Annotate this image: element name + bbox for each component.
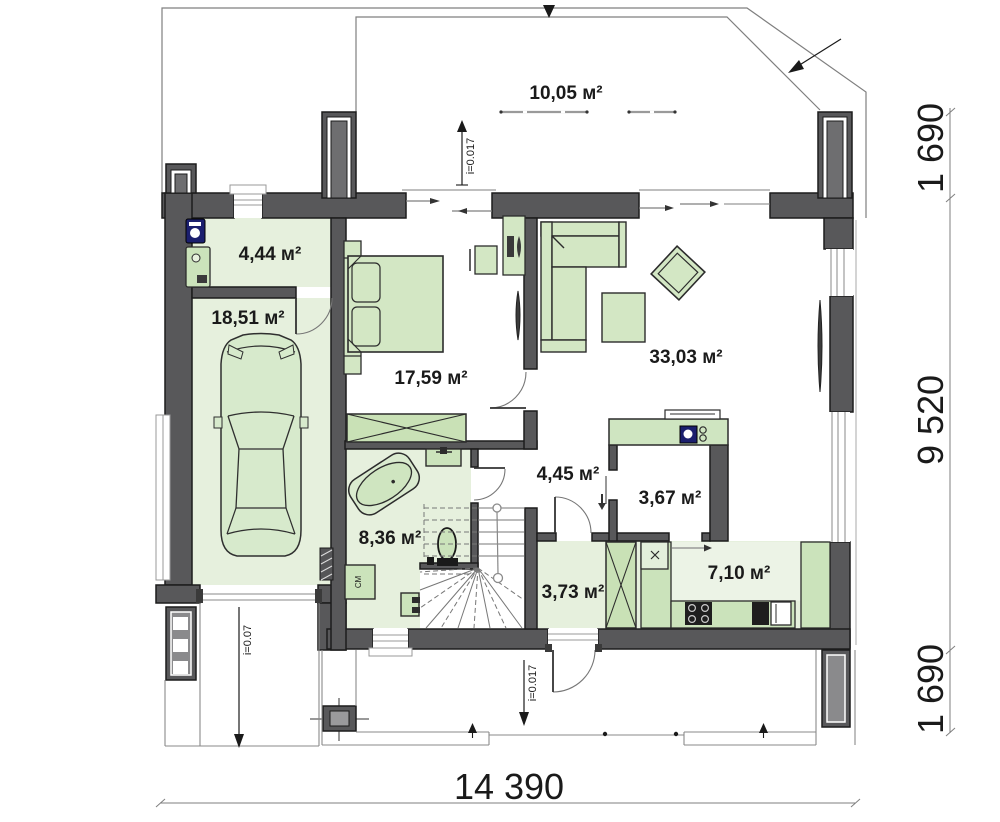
svg-text:1 690: 1 690 (910, 644, 951, 734)
svg-text:18,51 м²: 18,51 м² (211, 308, 284, 329)
svg-text:9 520: 9 520 (910, 375, 951, 465)
svg-text:4,44 м²: 4,44 м² (239, 244, 302, 265)
svg-text:3,67 м²: 3,67 м² (639, 488, 702, 509)
svg-text:i=0.017: i=0.017 (527, 665, 539, 701)
svg-text:33,03 м²: 33,03 м² (649, 347, 722, 368)
svg-text:3,73 м²: 3,73 м² (542, 582, 605, 603)
svg-text:4,45 м²: 4,45 м² (537, 464, 600, 485)
svg-text:17,59 м²: 17,59 м² (394, 368, 467, 389)
svg-text:7,10 м²: 7,10 м² (708, 563, 771, 584)
svg-text:i=0.07: i=0.07 (242, 625, 254, 655)
svg-text:i=0.017: i=0.017 (465, 138, 477, 174)
svg-text:10,05 м²: 10,05 м² (529, 83, 602, 104)
svg-text:14 390: 14 390 (454, 766, 564, 807)
svg-text:СМ: СМ (354, 575, 363, 588)
svg-text:1 690: 1 690 (910, 103, 951, 193)
svg-text:8,36 м²: 8,36 м² (359, 528, 422, 549)
